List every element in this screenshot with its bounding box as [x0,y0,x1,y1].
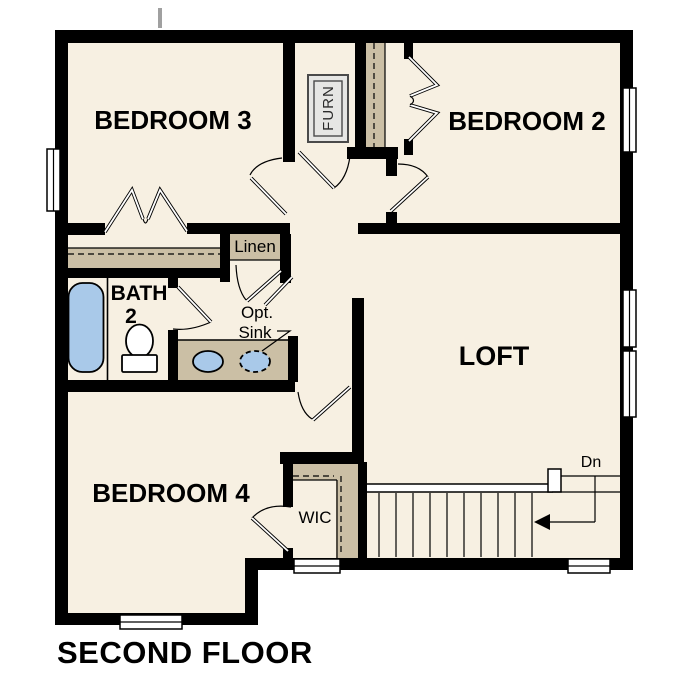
stairs-down-label: Dn [581,454,601,471]
wic-label: WIC [298,508,331,527]
opt-sink-label-line1: Opt. [241,303,273,322]
wall-b2door-stub-top [386,159,397,176]
wall-furn-bottom [347,147,398,159]
bedroom3-closet-shelf [68,248,225,268]
window-loft-right-upper [623,290,636,347]
bathtub [69,283,104,372]
toilet-tank [122,355,157,372]
bedroom2-closet-shelf [366,43,385,147]
wall-bath-top [55,268,225,278]
wall-bedroom3-bottom-left [55,223,105,235]
furnace-unit: FURN [308,75,348,142]
wic-shelf-right [336,462,358,558]
toilet-bowl [126,325,153,358]
window-stairs-bottom [568,559,610,573]
sink [193,351,223,372]
wall-b2closet-stub-bottom [404,139,413,155]
wall-exterior-left [55,30,68,625]
furnace-label: FURN [320,85,337,131]
wall-b2door-stub-bottom [386,212,397,224]
wall-bathdoor-stub [168,277,178,288]
wall-exterior-top [55,30,633,43]
wall-wic-left-stub [283,462,293,507]
wall-furn-right [355,43,366,147]
bedroom4-label: BEDROOM 4 [92,478,250,508]
wall-b2closet-stub-top [404,43,413,59]
floor-plan-svg: FURN [0,0,687,687]
window-loft-right-lower [623,351,636,417]
wall-linen-right [280,234,291,283]
linen-label: Linen [234,237,276,256]
wall-wic-stairs-divider [358,462,367,558]
stair-newel-post [548,469,561,492]
window-bedroom4-bottom [120,615,182,629]
wall-bedroom3-right [283,43,295,162]
wall-vanity-right [288,336,298,382]
loft-label: LOFT [459,341,530,371]
bath-label-line2: 2 [125,305,137,328]
opt-sink-label-line2: Sink [238,323,272,342]
wall-bedroom3-bottom-right [187,223,290,234]
bedroom3-label: BEDROOM 3 [94,105,251,135]
wall-bath-right-lower [168,330,178,380]
window-wic-bottom [294,559,340,573]
bath-label-line1: BATH [111,282,168,305]
stair-rail [362,484,552,492]
optional-sink [240,351,270,372]
window-bedroom3-left [47,149,60,211]
window-bedroom2-right [623,88,636,152]
wall-loft-left [352,298,364,462]
bedroom2-label: BEDROOM 2 [448,106,605,136]
wall-bedroom2-loft-divider [358,223,620,234]
section-marker [158,8,162,28]
plan-title: SECOND FLOOR [57,635,313,670]
wall-bath-bottom [55,380,295,392]
floor-plan-image: FURN [0,0,687,687]
